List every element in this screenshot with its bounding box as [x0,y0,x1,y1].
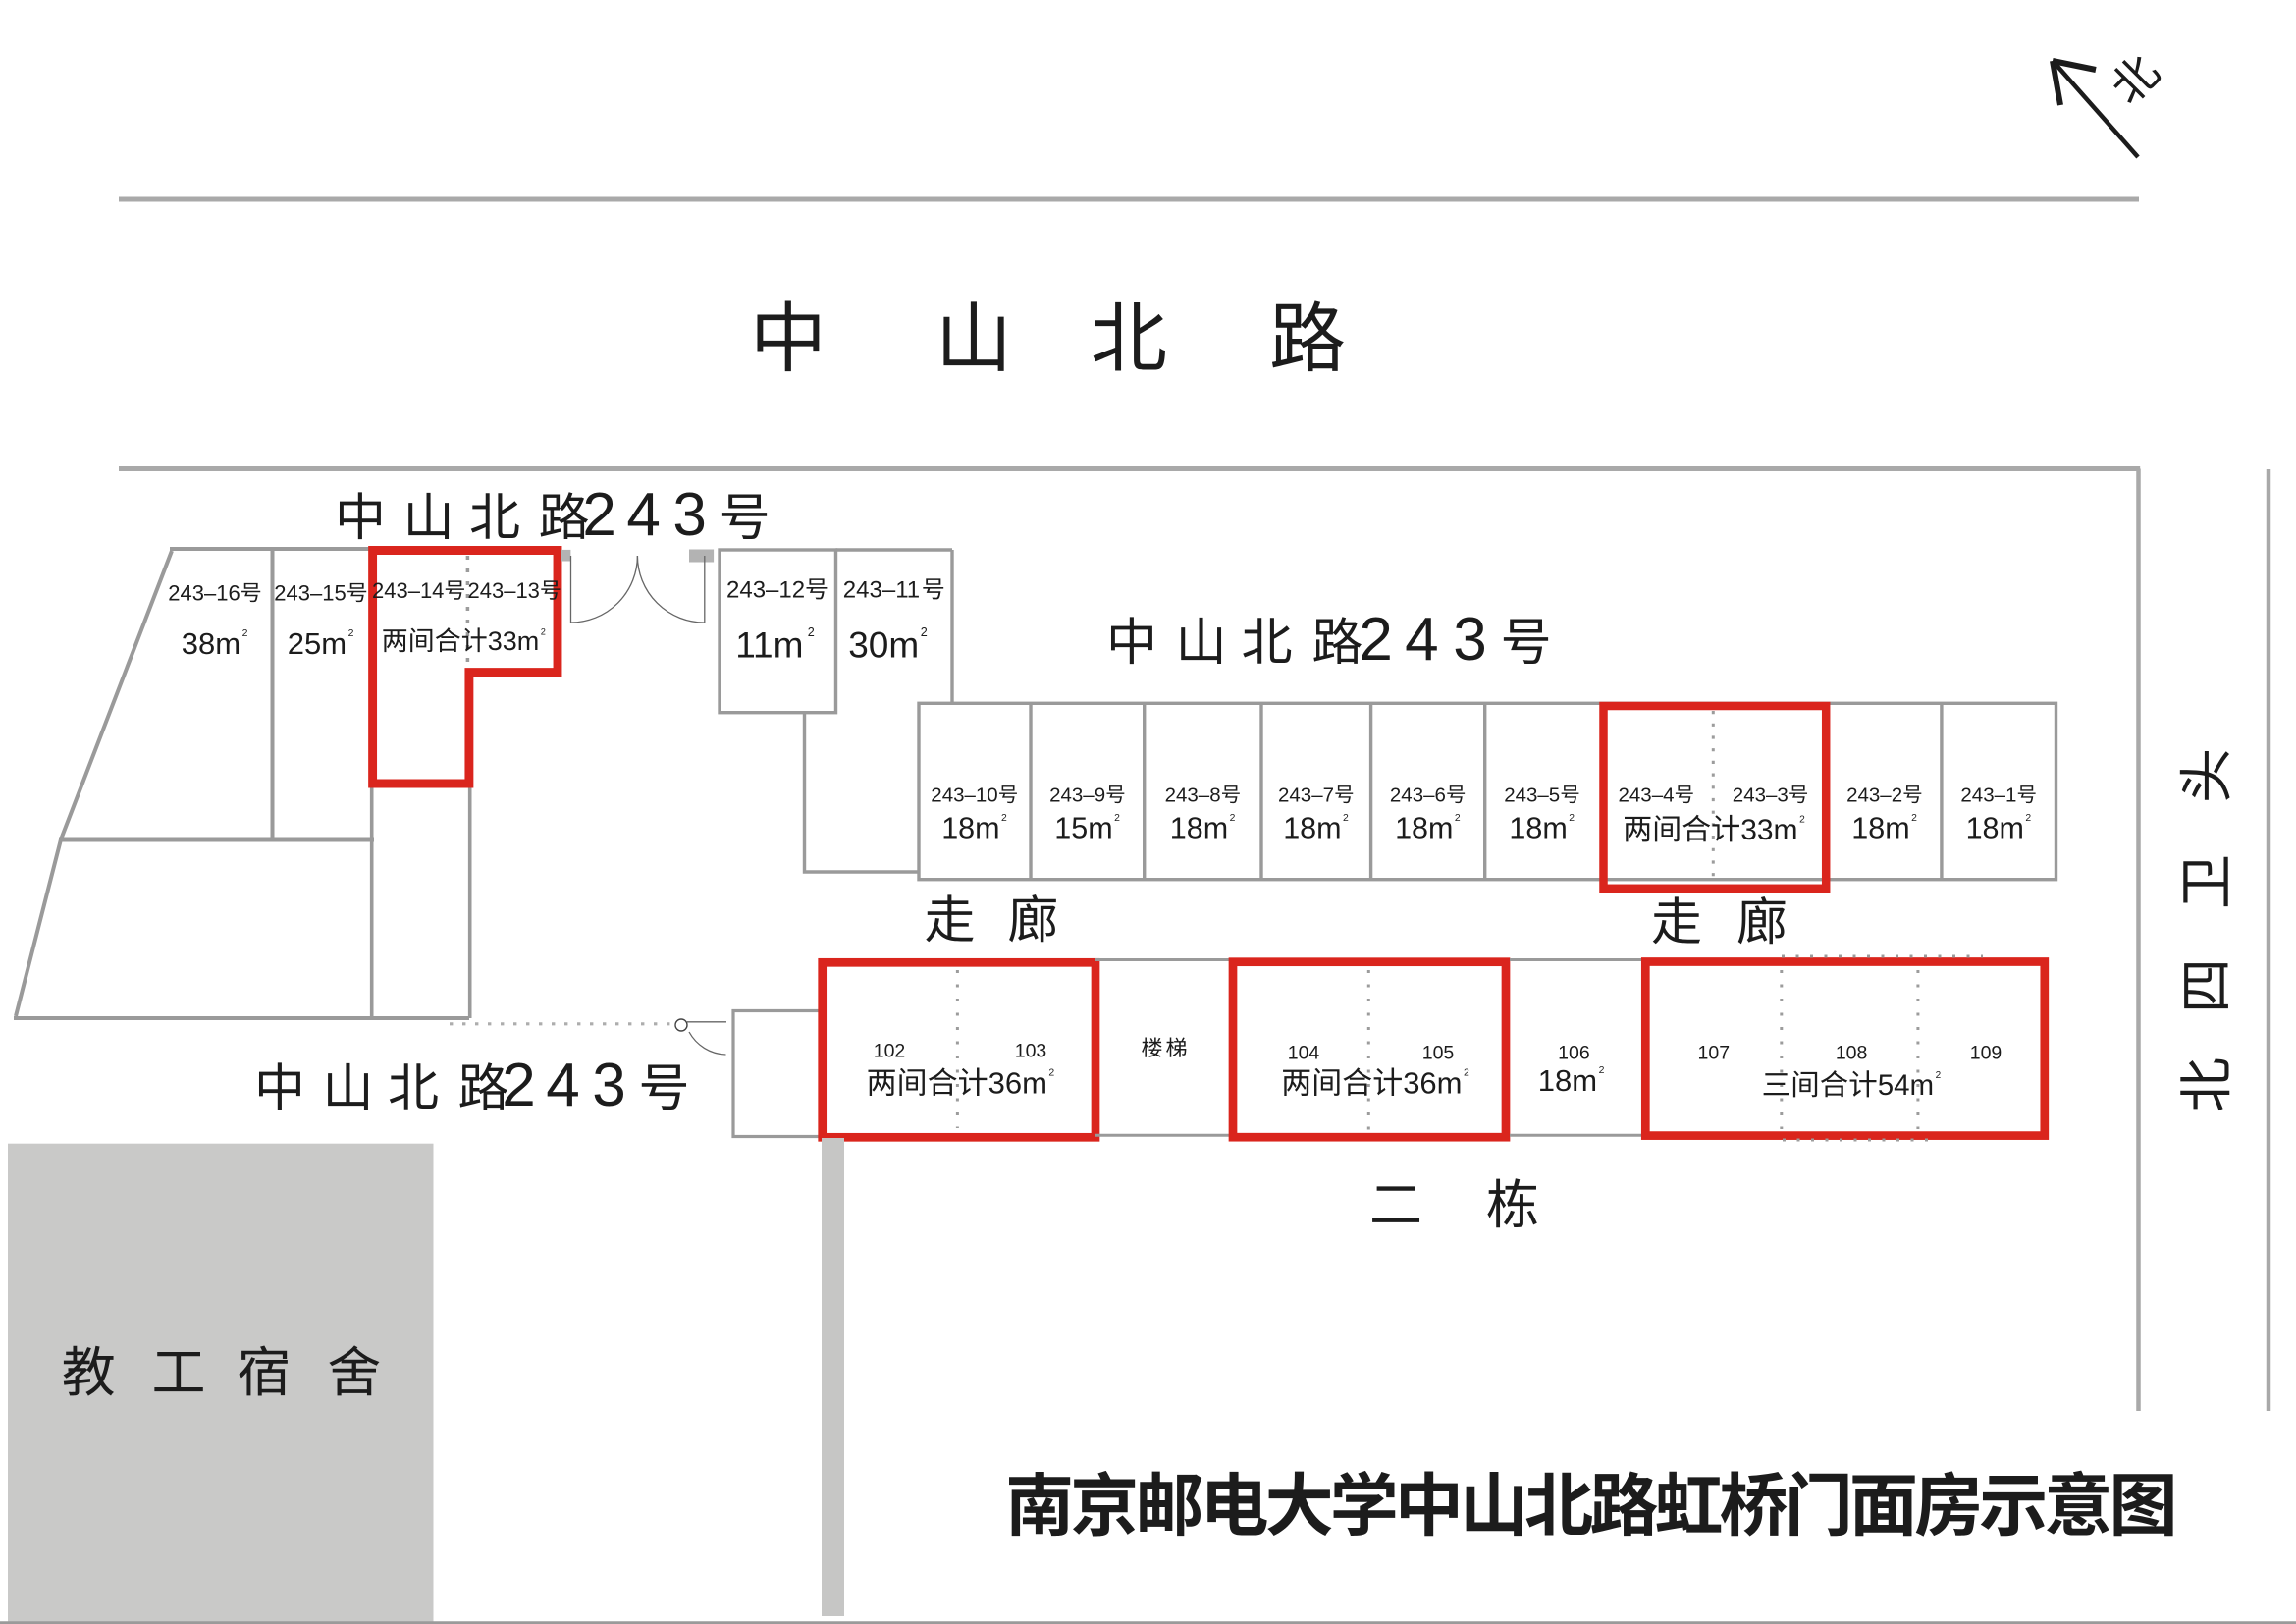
svg-text:2: 2 [1114,813,1120,824]
svg-text:2: 2 [1359,606,1392,674]
svg-text:243–1: 243–1 [1960,785,2016,807]
svg-text:2: 2 [1048,1067,1054,1079]
svg-text:18m: 18m [1395,812,1453,845]
svg-text:243–9: 243–9 [1049,785,1105,807]
svg-text:243–15: 243–15 [274,580,346,605]
svg-text:243–12: 243–12 [726,577,805,604]
svg-text:243–8: 243–8 [1165,785,1221,807]
svg-text:18m: 18m [1509,812,1567,845]
svg-text:36m: 36m [1403,1066,1462,1101]
svg-text:107: 107 [1698,1043,1731,1064]
svg-text:18m: 18m [941,812,999,845]
svg-text:243–7: 243–7 [1278,785,1334,807]
svg-text:2: 2 [1464,1067,1469,1079]
svg-text:3: 3 [672,481,706,549]
svg-text:25m: 25m [288,626,347,661]
svg-text:33m: 33m [488,626,540,656]
svg-text:3: 3 [592,1052,625,1119]
svg-text:243–2: 243–2 [1846,785,1902,807]
svg-text:2: 2 [1569,813,1575,824]
svg-text:4: 4 [1405,606,1438,674]
svg-text:18m: 18m [1966,812,2024,845]
svg-text:4: 4 [546,1052,579,1119]
svg-text:38m: 38m [182,626,240,661]
svg-text:2: 2 [921,625,928,639]
svg-text:2: 2 [242,627,248,639]
svg-text:2: 2 [1936,1070,1942,1081]
svg-text:36m: 36m [988,1066,1047,1101]
svg-text:2: 2 [1911,813,1917,824]
svg-text:18m: 18m [1851,812,1909,845]
svg-text:102: 102 [874,1040,906,1061]
svg-text:3: 3 [1453,606,1486,674]
svg-text:18m: 18m [1283,812,1341,845]
svg-text:243–3: 243–3 [1733,785,1789,807]
svg-text:243–14: 243–14 [372,578,444,603]
svg-text:106: 106 [1558,1043,1590,1064]
svg-text:2: 2 [1799,815,1805,826]
svg-text:2: 2 [2025,813,2031,824]
svg-text:243–6: 243–6 [1390,785,1446,807]
svg-text:2: 2 [1230,813,1236,824]
svg-text:243–13: 243–13 [468,578,540,603]
svg-text:2: 2 [1343,813,1349,824]
svg-text:103: 103 [1015,1040,1047,1061]
svg-text:15m: 15m [1054,812,1112,845]
svg-text:2: 2 [541,626,546,636]
svg-text:109: 109 [1970,1043,2002,1064]
svg-text:18m: 18m [1538,1063,1597,1098]
svg-text:2: 2 [502,1052,535,1119]
svg-text:54m: 54m [1878,1069,1934,1102]
svg-text:243–11: 243–11 [843,577,920,604]
svg-text:108: 108 [1836,1043,1868,1064]
svg-text:243–10: 243–10 [931,785,997,807]
svg-text:4: 4 [626,481,660,549]
svg-text:243–5: 243–5 [1504,785,1560,807]
svg-text:2: 2 [808,625,815,639]
svg-text:11m: 11m [735,624,803,665]
svg-text:2: 2 [348,627,354,639]
svg-text:2: 2 [1455,813,1461,824]
svg-text:104: 104 [1288,1043,1320,1064]
svg-text:30m: 30m [848,624,919,665]
svg-text:2: 2 [1001,813,1007,824]
svg-text:105: 105 [1422,1043,1455,1064]
svg-text:243–16: 243–16 [168,580,240,605]
svg-text:2: 2 [1599,1064,1605,1076]
svg-text:243–4: 243–4 [1619,785,1675,807]
svg-text:2: 2 [582,481,615,549]
svg-text:18m: 18m [1170,812,1228,845]
svg-text:33m: 33m [1740,814,1797,846]
